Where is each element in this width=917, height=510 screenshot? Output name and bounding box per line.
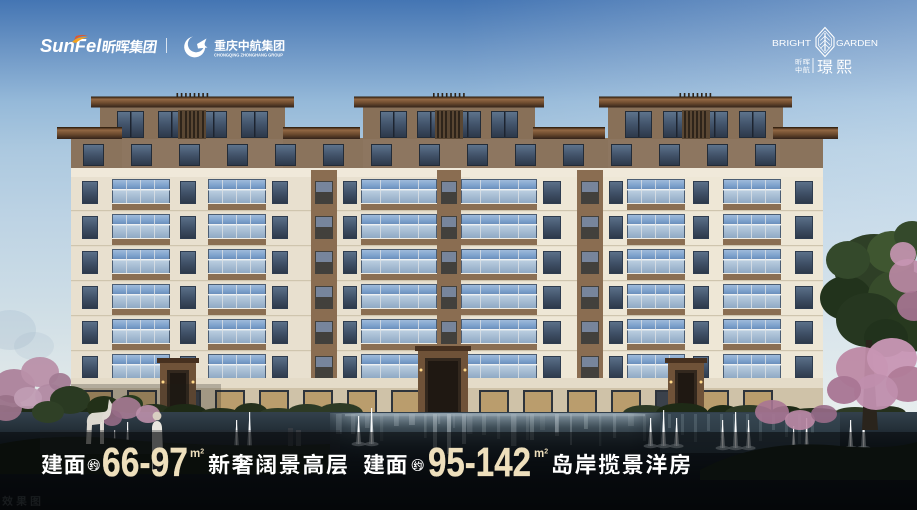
svg-text:SunFel: SunFel bbox=[40, 35, 102, 56]
svg-text:BRIGHT: BRIGHT bbox=[772, 38, 812, 48]
svg-text:CHONGQING ZHONGHANG GROUP: CHONGQING ZHONGHANG GROUP bbox=[214, 53, 283, 58]
svg-text:95-142: 95-142 bbox=[428, 439, 531, 485]
svg-text:GARDEN: GARDEN bbox=[836, 38, 878, 48]
svg-text:66-97: 66-97 bbox=[102, 439, 188, 485]
